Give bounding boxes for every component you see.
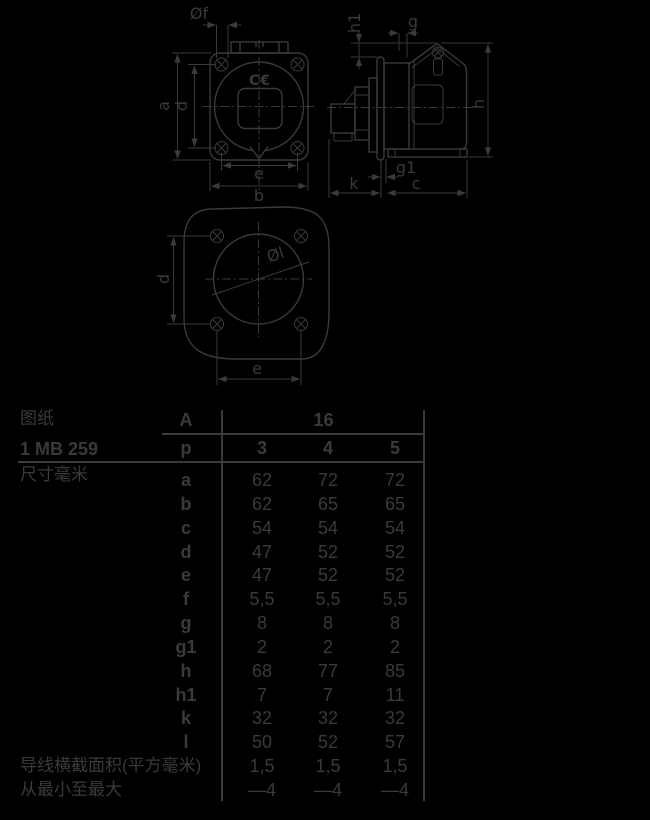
row-value: 85 <box>357 659 433 683</box>
row-letter: h <box>150 659 222 683</box>
row-value: 65 <box>357 492 433 516</box>
row-value: 62 <box>224 492 300 516</box>
row-value: 7 <box>290 683 366 707</box>
wire-range-label: 从最小至最大 <box>20 779 122 801</box>
row-value: 57 <box>357 730 433 754</box>
row-value: 54 <box>357 516 433 540</box>
row-value: 32 <box>224 706 300 730</box>
row-letter: b <box>150 492 222 516</box>
ce-mark: C€ <box>249 73 271 89</box>
row-value: 8 <box>290 611 366 635</box>
front-view-drawing: C€ Øf a d <box>154 4 315 205</box>
dim-label-h: h <box>469 99 488 109</box>
row-letter: e <box>150 563 222 587</box>
row-value: 68 <box>224 659 300 683</box>
dim-label-h1: h1 <box>345 13 364 33</box>
dim-label-k: k <box>349 174 359 193</box>
row-letter: g <box>150 611 222 635</box>
row-value: 32 <box>357 706 433 730</box>
row-value: 8 <box>357 611 433 635</box>
header-pole-5: 5 <box>357 434 433 462</box>
row-value: 52 <box>290 730 366 754</box>
rear-view-drawing: Øl d e <box>154 207 329 385</box>
row-value: 7 <box>224 683 300 707</box>
dim-label-c: c <box>412 174 421 193</box>
sheet-code: 1 MB 259 <box>20 438 98 460</box>
dim-e-rear: e <box>217 330 301 385</box>
row-value: 52 <box>290 563 366 587</box>
row-value: 11 <box>357 683 433 707</box>
row-value: 50 <box>224 730 300 754</box>
row-letter: l <box>150 730 222 754</box>
row-value: 47 <box>224 540 300 564</box>
row-letter: d <box>150 540 222 564</box>
dim-g1: g1 <box>368 158 416 198</box>
row-value: 5,5 <box>224 587 300 611</box>
sheet-label: 图纸 <box>20 408 54 430</box>
row-value: —4 <box>290 778 366 802</box>
row-letter: h1 <box>150 683 222 707</box>
datasheet-page: C€ Øf a d <box>0 0 650 820</box>
row-value: —4 <box>224 778 300 802</box>
dim-label-a: a <box>154 101 173 111</box>
dim-label-b: b <box>254 186 264 205</box>
technical-drawing: C€ Øf a d <box>0 0 650 405</box>
row-value: 72 <box>290 468 366 492</box>
row-value: 54 <box>224 516 300 540</box>
dim-label-l: Øl <box>264 243 286 266</box>
wire-section-label: 导线横截面积(平方毫米) <box>20 755 201 777</box>
row-letter: c <box>150 516 222 540</box>
dim-label-e-front: e <box>254 164 264 183</box>
row-value: 1,5 <box>224 754 300 778</box>
row-value: 5,5 <box>290 587 366 611</box>
row-letter: f <box>150 587 222 611</box>
dims-unit-label: 尺寸毫米 <box>20 464 88 486</box>
row-value: 8 <box>224 611 300 635</box>
row-value: 2 <box>357 635 433 659</box>
dim-d-rear: d <box>154 236 211 324</box>
row-value: 72 <box>357 468 433 492</box>
dim-label-g: g <box>408 12 418 31</box>
header-pole-4: 4 <box>290 434 366 462</box>
header-current-col: A <box>150 406 222 434</box>
row-letter: g1 <box>150 635 222 659</box>
row-value: 52 <box>357 540 433 564</box>
row-value: 2 <box>224 635 300 659</box>
dim-f: Øf <box>190 4 241 58</box>
dim-label-f: Øf <box>190 4 209 23</box>
row-value: 47 <box>224 563 300 587</box>
row-value: —4 <box>357 778 433 802</box>
row-value: 62 <box>224 468 300 492</box>
row-value: 1,5 <box>357 754 433 778</box>
header-pole-3: 3 <box>224 434 300 462</box>
row-value: 5,5 <box>357 587 433 611</box>
header-poles-col: p <box>150 434 222 462</box>
header-current-value: 16 <box>222 406 425 434</box>
row-value: 65 <box>290 492 366 516</box>
row-value: 54 <box>290 516 366 540</box>
row-value: 1,5 <box>290 754 366 778</box>
row-value: 52 <box>357 563 433 587</box>
dim-k: k <box>329 139 380 198</box>
dim-g: g <box>388 12 418 57</box>
row-letter: a <box>150 468 222 492</box>
row-value: 52 <box>290 540 366 564</box>
row-value: 2 <box>290 635 366 659</box>
row-value: 32 <box>290 706 366 730</box>
row-letter: k <box>150 706 222 730</box>
dim-label-d-rear: d <box>154 274 173 284</box>
dim-label-d-front: d <box>172 101 191 111</box>
row-value: 77 <box>290 659 366 683</box>
dim-label-e-rear: e <box>252 359 262 378</box>
dim-h1: h1 <box>345 13 436 69</box>
side-view-drawing: h1 g h g1 <box>327 12 493 198</box>
